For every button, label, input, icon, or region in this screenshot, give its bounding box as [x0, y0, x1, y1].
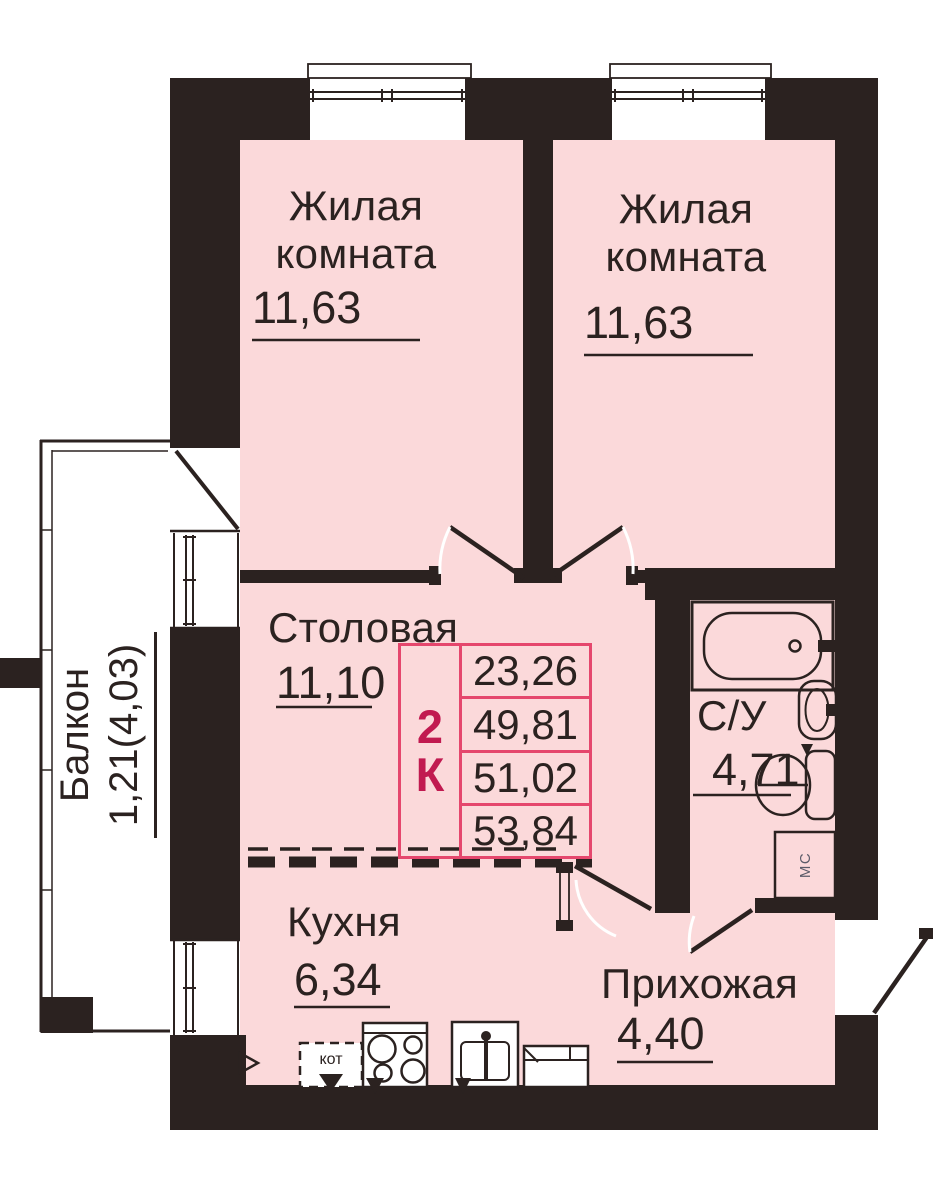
room-area-hallway: 4,40	[617, 1008, 705, 1060]
balcony-name: Балкон	[51, 668, 100, 802]
room-area-living2: 11,63	[584, 297, 693, 349]
room-area-bathroom: 4,71	[712, 744, 800, 796]
window-opening	[612, 78, 765, 140]
wall-mid-thin-left	[240, 570, 437, 583]
floor-plan-canvas: Жилая комната 11,63 Жилая комната 11,63 …	[0, 0, 950, 1183]
room-area-dining: 11,10	[276, 657, 385, 709]
window-opening	[310, 78, 465, 140]
room-label-balcony: Балкон 1,21(4,03)	[49, 585, 159, 885]
balcony-area: 1,21(4,03)	[100, 632, 157, 838]
area-table-row: 23,26	[459, 643, 592, 699]
wall-bathroom-bottom	[755, 898, 835, 913]
room-label-living1: Жилая комната	[250, 182, 462, 278]
area-table-row: 49,81	[459, 696, 592, 753]
room-label-kitchen: Кухня	[287, 898, 401, 946]
unit-type-cell: 2 К	[398, 643, 462, 859]
wall-bathroom-left	[655, 600, 690, 913]
door-leaf-entry	[874, 937, 927, 1013]
wall-bathroom-top	[645, 568, 835, 600]
wall-stub-left	[0, 658, 42, 688]
room-label-living2: Жилая комната	[578, 185, 794, 281]
room-area-living1: 11,63	[252, 282, 361, 334]
washing-machine-label: МС	[790, 843, 820, 887]
wall-left-middle	[170, 628, 240, 940]
area-table-row: 51,02	[459, 750, 592, 806]
wall-bedroom-divider	[523, 140, 553, 583]
wall-bottom	[170, 1085, 878, 1130]
room-area-kitchen: 6,34	[294, 954, 382, 1006]
unit-rooms-letter: К	[416, 751, 445, 799]
balcony-corner-block	[41, 997, 93, 1033]
room-label-bathroom: С/У	[697, 692, 767, 740]
wall-right-lower-corner	[835, 1015, 878, 1130]
wall-top	[170, 78, 876, 140]
boiler-label: кот	[300, 1051, 362, 1069]
counter-icon	[524, 1046, 588, 1087]
kitchen-sink-icon	[452, 1022, 518, 1094]
wall-right	[835, 78, 878, 920]
room-label-hallway: Прихожая	[601, 960, 798, 1008]
stove-icon	[363, 1023, 427, 1094]
unit-rooms-count: 2	[417, 703, 443, 751]
wall-left-upper	[170, 78, 240, 448]
area-table-row: 53,84	[459, 803, 592, 859]
door-entry-cap	[919, 928, 933, 939]
